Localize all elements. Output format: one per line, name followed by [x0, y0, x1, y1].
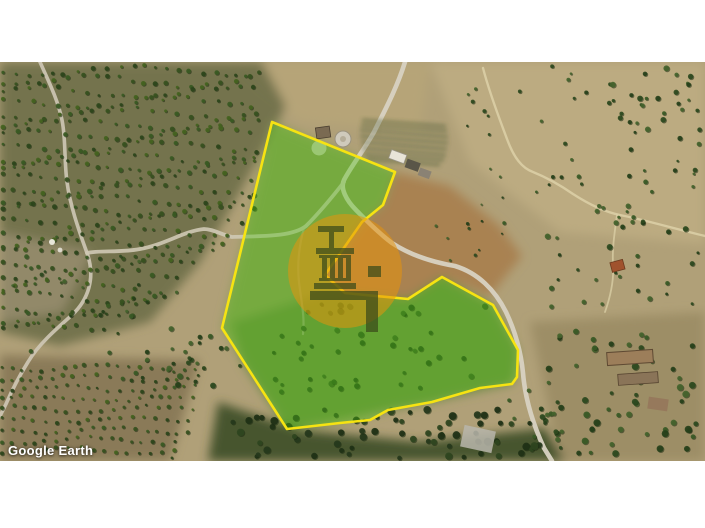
listing-map-page: Google Earth [0, 0, 705, 528]
badge-circle [288, 214, 402, 328]
bottom-whitespace [0, 461, 705, 528]
satellite-image [0, 62, 705, 461]
satellite-map-viewport[interactable]: Google Earth [0, 62, 705, 461]
top-whitespace [0, 0, 705, 62]
google-earth-watermark: Google Earth [8, 443, 93, 458]
